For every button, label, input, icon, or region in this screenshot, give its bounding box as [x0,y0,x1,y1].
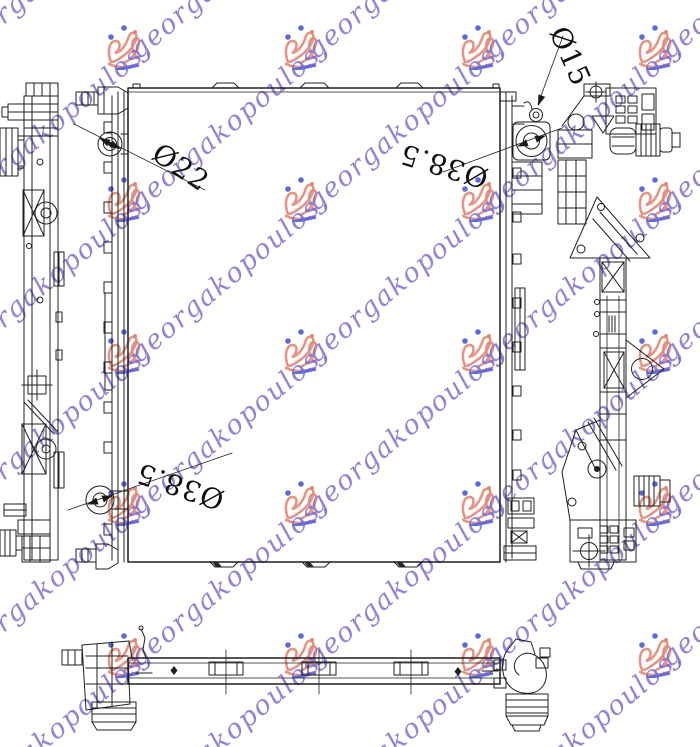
watermark-text: georgakopoulos, [301,337,512,521]
watermark-text: georgakopoulos, [124,33,335,217]
watermark-text: georgakopoulos, [124,489,335,673]
watermark-text: georgakopoulos, [124,185,335,369]
watermark-text: georgakopoulos, [478,489,689,673]
watermark-text: georgakopoulos, [301,489,512,673]
dimension-port-top-right-small: Ø15 [535,21,598,107]
watermark-text: georgakopoulos, [478,337,689,521]
port-top-right-small [512,102,543,124]
radiator-technical-drawing: georgakopoulos, georgakopoulos, georgako… [0,0,700,747]
arrowhead-icon [535,94,546,107]
watermark-text: georgakopoulos, [301,185,512,369]
dimension-annotations: Ø22 Ø15 Ø38.5 Ø38.5 [68,21,598,516]
dimension-label: Ø15 [543,21,598,91]
center-mark [171,666,178,675]
mounting-slot [394,650,428,694]
mounting-slot [209,650,243,694]
dimension-label: Ø38.5 [396,137,492,195]
watermark-text: georgakopoulos, [478,185,689,369]
